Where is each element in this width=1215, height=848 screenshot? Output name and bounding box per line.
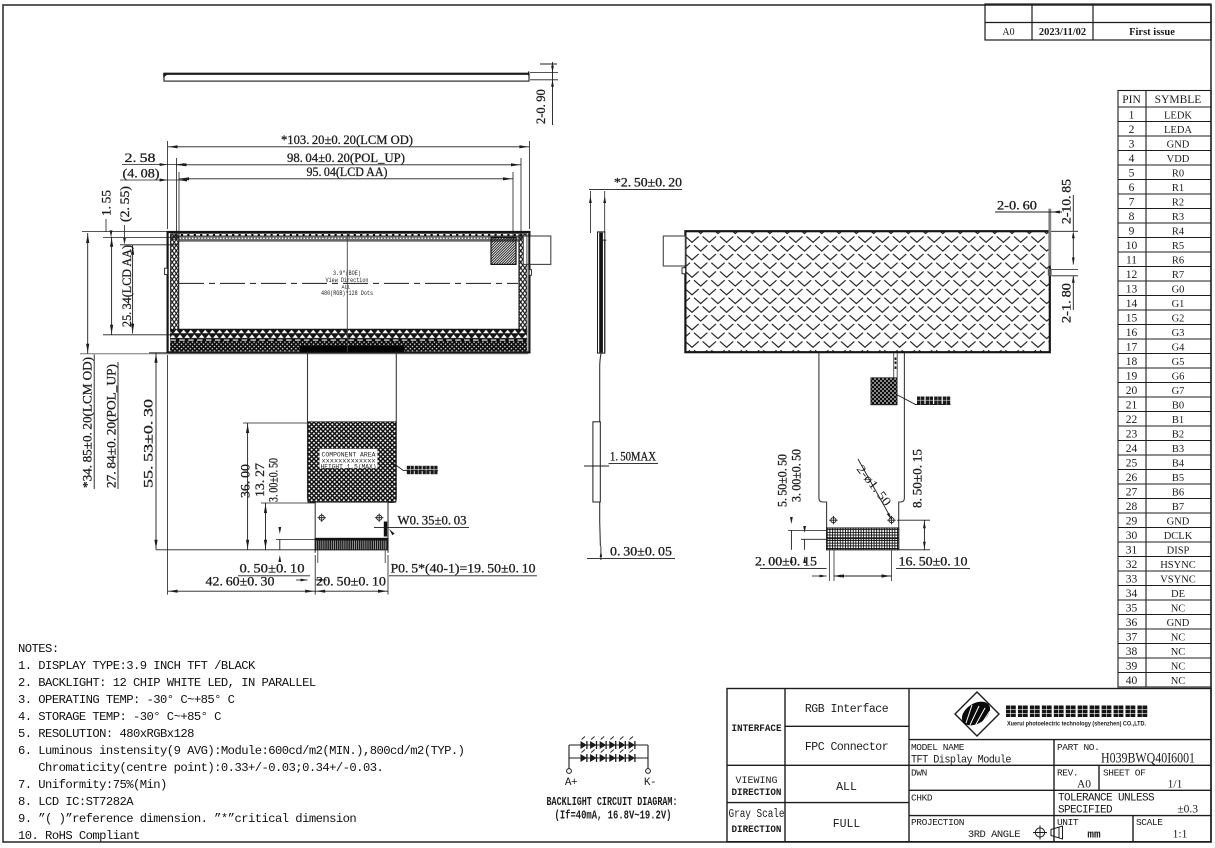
svg-text:G3: G3 [1172,328,1185,339]
svg-text:27: 27 [1126,487,1138,499]
svg-text:A0: A0 [1077,779,1091,791]
svg-text:22: 22 [1126,414,1138,426]
svg-text:B6: B6 [1172,488,1184,499]
svg-text:13: 13 [1126,284,1138,296]
svg-text:8. LCD IC:ST7282A: 8. LCD IC:ST7282A [18,795,134,809]
svg-text:A+: A+ [565,777,577,789]
svg-text:2-10. 85: 2-10. 85 [1060,179,1074,224]
svg-text:mm: mm [1087,830,1101,842]
svg-text:MODEL NAME: MODEL NAME [911,742,965,753]
svg-text:R4: R4 [1172,227,1185,238]
svg-text:W0. 35±0. 03: W0. 35±0. 03 [398,513,467,528]
svg-text:DISP: DISP [1167,546,1190,557]
svg-text:DWN: DWN [911,768,927,779]
svg-text:VSYNC: VSYNC [1160,575,1196,586]
svg-text:PART NO.: PART NO. [1057,742,1099,753]
svg-text:32: 32 [1126,559,1138,571]
svg-text:B5: B5 [1172,473,1184,484]
svg-text:8: 8 [1129,211,1135,223]
svg-text:DE: DE [1171,589,1185,600]
svg-text:34: 34 [1126,588,1138,600]
svg-text:*34. 85±0. 20(LCM OD): *34. 85±0. 20(LCM OD) [80,357,95,488]
svg-text:TFT Display Module: TFT Display Module [911,755,1011,767]
svg-text:2-1. 80: 2-1. 80 [1060,283,1074,323]
svg-text:16. 50±0. 10: 16. 50±0. 10 [899,555,968,569]
svg-text:3. OPERATING TEMP: -30° C~+85°: 3. OPERATING TEMP: -30° C~+85° C [18,693,235,707]
svg-text:SCALE: SCALE [1136,817,1163,828]
svg-text:R0: R0 [1172,169,1184,180]
svg-text:36. 00: 36. 00 [238,464,253,498]
svg-text:25. 34(LCD AA): 25. 34(LCD AA) [119,245,134,327]
svg-text:K-: K- [644,777,656,789]
svg-text:R1: R1 [1172,183,1184,194]
svg-text:B4: B4 [1172,459,1185,470]
svg-text:VIEWING: VIEWING [736,776,778,787]
svg-text:5: 5 [1129,168,1135,180]
svg-text:37: 37 [1126,632,1138,644]
svg-text:7: 7 [1129,197,1135,209]
svg-text:NC: NC [1171,647,1186,658]
svg-text:G6: G6 [1172,372,1185,383]
svg-text:SHEET OF: SHEET OF [1103,768,1146,779]
svg-text:SPECIFIED: SPECIFIED [1058,805,1113,817]
svg-text:3RD ANGLE: 3RD ANGLE [968,829,1020,841]
svg-text:19: 19 [1126,371,1138,383]
svg-text:(4. 08): (4. 08) [123,166,160,181]
svg-text:1. 50MAX: 1. 50MAX [610,449,656,464]
svg-text:R2: R2 [1172,198,1184,209]
svg-text:Gray Scale: Gray Scale [729,808,785,821]
svg-text:G7: G7 [1172,386,1185,397]
svg-text:R7: R7 [1172,270,1184,281]
svg-text:HEIGHT 1.5(MAX): HEIGHT 1.5(MAX) [321,463,377,470]
svg-text:UNIT: UNIT [1057,817,1079,828]
svg-text:DIRECTION: DIRECTION [732,824,782,836]
svg-text:1. 55: 1. 55 [100,190,114,216]
svg-text:2: 2 [1129,124,1135,136]
svg-text:15: 15 [1126,313,1138,325]
svg-text:20. 50±0. 10: 20. 50±0. 10 [316,574,386,589]
svg-text:NC: NC [1171,604,1186,615]
svg-text:G2: G2 [1172,314,1185,325]
svg-text:B2: B2 [1172,430,1184,441]
svg-text:2. 00±0. 15: 2. 00±0. 15 [755,555,817,569]
svg-text:REV.: REV. [1057,768,1078,779]
svg-text:17: 17 [1126,342,1138,354]
svg-text:95. 04(LCD AA): 95. 04(LCD AA) [307,164,388,179]
svg-text:21: 21 [1126,400,1138,412]
svg-text:DIRECTION: DIRECTION [732,787,782,799]
svg-text:INTERFACE: INTERFACE [732,724,782,735]
svg-text:8. 50±0. 15: 8. 50±0. 15 [911,449,925,508]
svg-text:2. 58: 2. 58 [125,150,156,165]
svg-text:RGB Interface: RGB Interface [805,703,889,716]
svg-text:*103. 20±0. 20(LCM OD): *103. 20±0. 20(LCM OD) [281,132,413,147]
svg-text:FPC Connector: FPC Connector [805,741,888,754]
svg-text:33: 33 [1126,574,1138,586]
svg-text:6: 6 [1129,182,1135,194]
svg-text:6. Luminous instensity(9 AVG):: 6. Luminous instensity(9 AVG):Module:600… [18,744,464,758]
svg-text:BACKLIGHT CIRCUIT DIAGRAM:: BACKLIGHT CIRCUIT DIAGRAM: [547,796,678,809]
svg-text:2. BACKLIGHT: 12 CHIP WHITE LE: 2. BACKLIGHT: 12 CHIP WHITE LED, IN PARA… [18,676,316,690]
svg-text:G0: G0 [1172,285,1185,296]
svg-text:GND: GND [1167,618,1190,629]
svg-text:25: 25 [1126,458,1138,470]
svg-text:CHKD: CHKD [911,793,933,804]
svg-text:4: 4 [1129,153,1135,165]
svg-text:36: 36 [1126,617,1138,629]
svg-text:42. 60±0. 30: 42. 60±0. 30 [206,574,275,589]
svg-text:B0: B0 [1172,401,1184,412]
svg-text:2-ø1. 50: 2-ø1. 50 [854,462,895,508]
svg-text:16: 16 [1126,327,1138,339]
svg-text:14: 14 [1126,298,1138,310]
svg-text:3. 00±0. 50: 3. 00±0. 50 [790,449,804,502]
svg-text:NC: NC [1171,633,1186,644]
svg-text:11: 11 [1126,255,1137,267]
svg-text:GND: GND [1167,140,1190,151]
svg-text:12: 12 [1126,269,1138,281]
svg-text:5. 50±0. 50: 5. 50±0. 50 [776,454,790,507]
svg-text:28: 28 [1126,501,1138,513]
svg-text:27. 84±0. 20(POL_UP): 27. 84±0. 20(POL_UP) [104,364,119,488]
svg-text:GND: GND [1167,517,1190,528]
svg-text:38: 38 [1126,646,1138,658]
svg-text:24: 24 [1126,443,1138,455]
svg-text:P0. 5*(40-1)=19. 50±0. 10: P0. 5*(40-1)=19. 50±0. 10 [391,561,536,576]
svg-text:NC: NC [1171,676,1186,687]
svg-text:(2. 55): (2. 55) [118,186,132,222]
svg-text:4. STORAGE TEMP: -30° C~+85° C: 4. STORAGE TEMP: -30° C~+85° C [18,710,221,724]
svg-text:10. RoHS Compliant: 10. RoHS Compliant [18,829,140,843]
svg-text:9: 9 [1129,226,1135,238]
svg-text:55. 53±0. 30: 55. 53±0. 30 [141,399,156,488]
svg-text:G1: G1 [1172,299,1185,310]
svg-text:98. 04±0. 20(POL_UP): 98. 04±0. 20(POL_UP) [287,150,405,165]
svg-text:B7: B7 [1172,502,1184,513]
svg-text:R5: R5 [1172,241,1184,252]
svg-text:A0: A0 [1002,27,1014,38]
svg-text:18: 18 [1126,356,1138,368]
svg-text:10: 10 [1126,240,1138,252]
svg-text:Xuerui photoelectric technolog: Xuerui photoelectric technology (shenzhe… [1007,721,1146,728]
svg-text:9. ”( )”reference dimension. ”: 9. ”( )”reference dimension. ”*”critical… [18,812,356,826]
svg-text:*2. 50±0. 20: *2. 50±0. 20 [614,175,682,190]
svg-text:LEDK: LEDK [1164,111,1192,122]
svg-text:7. Uniformity:75%(Min): 7. Uniformity:75%(Min) [18,778,167,792]
svg-text:35: 35 [1126,603,1138,615]
svg-text:(If=40mA, 16.8V~19.2V): (If=40mA, 16.8V~19.2V) [555,810,672,823]
svg-text:TOLERANCE UNLESS: TOLERANCE UNLESS [1058,793,1155,805]
svg-text:2-0. 60: 2-0. 60 [997,199,1037,213]
svg-text:FULL: FULL [833,818,861,831]
svg-text:R3: R3 [1172,212,1184,223]
svg-text:SYMBLE: SYMBLE [1155,94,1202,106]
svg-text:First issue: First issue [1129,27,1175,38]
svg-text:NC: NC [1171,662,1186,673]
svg-text:PIN: PIN [1122,94,1141,106]
svg-text:NOTES:: NOTES: [18,642,59,656]
svg-text:5. RESOLUTION: 480xRGBx128: 5. RESOLUTION: 480xRGBx128 [18,727,194,741]
svg-text:2-0. 90: 2-0. 90 [534,89,548,124]
svg-text:39: 39 [1126,661,1138,673]
svg-text:G5: G5 [1172,357,1185,368]
svg-text:B1: B1 [1172,415,1184,426]
svg-text:G4: G4 [1172,343,1186,354]
svg-text:±0.3: ±0.3 [1177,804,1198,816]
svg-text:LEDA: LEDA [1164,125,1192,136]
svg-text:20: 20 [1126,385,1138,397]
svg-text:1. DISPLAY TYPE:3.9 INCH TFT /: 1. DISPLAY TYPE:3.9 INCH TFT /BLACK [18,659,256,673]
svg-text:480(RGB)*128 Dots: 480(RGB)*128 Dots [321,290,373,297]
svg-text:H039BWQ40I6001: H039BWQ40I6001 [1101,751,1195,767]
svg-text:40: 40 [1126,675,1138,687]
svg-text:1:1: 1:1 [1173,829,1188,841]
svg-text:R6: R6 [1172,256,1184,267]
svg-text:B3: B3 [1172,444,1184,455]
svg-text:23: 23 [1126,429,1138,441]
svg-text:3: 3 [1129,139,1135,151]
svg-text:1/1: 1/1 [1168,779,1183,791]
svg-text:31: 31 [1126,545,1138,557]
svg-text:0. 30±0. 05: 0. 30±0. 05 [610,544,672,559]
svg-text:PROJECTION: PROJECTION [911,817,964,828]
svg-text:HSYNC: HSYNC [1160,560,1196,571]
svg-text:VDD: VDD [1167,154,1190,165]
svg-text:30: 30 [1126,530,1138,542]
svg-text:DCLK: DCLK [1164,531,1193,542]
svg-text:Chromaticity(centre point):0.3: Chromaticity(centre point):0.33+/-0.03;0… [18,761,383,775]
svg-text:ALL: ALL [836,781,857,794]
svg-text:26: 26 [1126,472,1138,484]
svg-text:3. 00±0. 50: 3. 00±0. 50 [266,458,281,502]
svg-text:1: 1 [1129,110,1135,122]
svg-text:29: 29 [1126,516,1138,528]
svg-text:2023/11/02: 2023/11/02 [1039,27,1086,38]
